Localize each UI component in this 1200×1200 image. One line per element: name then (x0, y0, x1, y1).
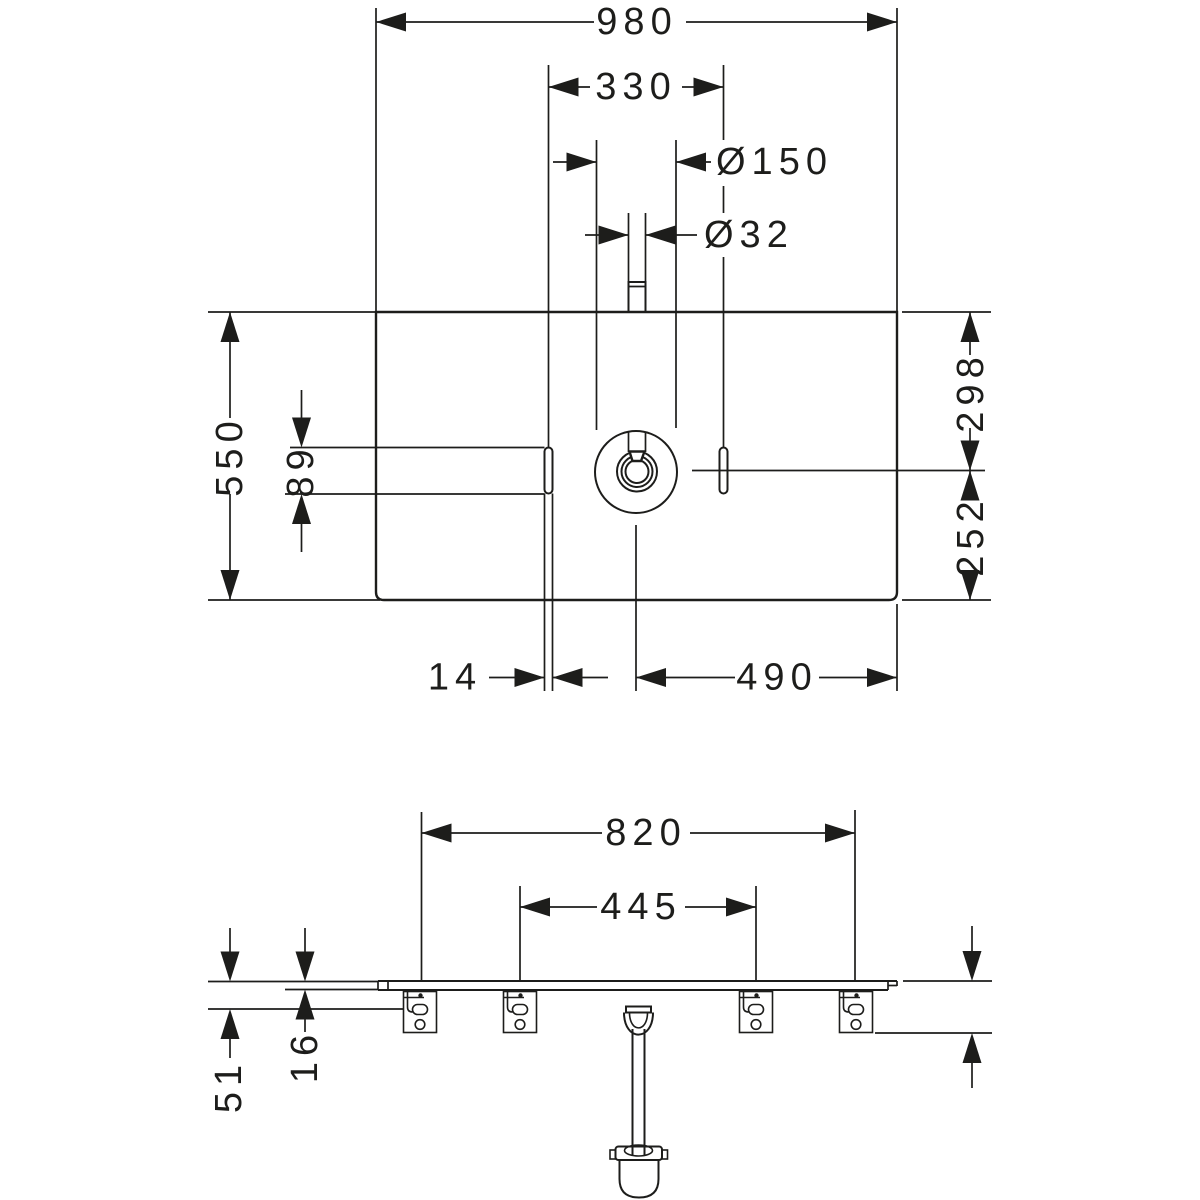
dim-label-550: 550 (209, 415, 251, 496)
bracket-screw (754, 993, 758, 997)
dim-label-51: 51 (208, 1059, 250, 1113)
bracket-screw (418, 993, 422, 997)
technical-drawing: 980 330 Ø150 (0, 0, 1200, 1200)
bracket-screw (854, 993, 858, 997)
dim-label-14: 14 (428, 657, 482, 699)
dim-label-16: 16 (284, 1029, 326, 1083)
dim-label-32: Ø32 (704, 214, 794, 256)
dim-label-330: 330 (595, 66, 676, 108)
dim-label-820: 820 (605, 812, 686, 854)
dim-label-298: 298 (950, 351, 992, 432)
drawing-canvas: 980 330 Ø150 (0, 0, 1200, 1200)
dim-label-445: 445 (600, 886, 681, 928)
dim-label-89: 89 (280, 443, 322, 497)
dim-label-150: Ø150 (716, 141, 833, 183)
dim-label-252: 252 (950, 495, 992, 576)
drain-clip (630, 452, 645, 462)
dim-label-490: 490 (736, 657, 817, 699)
dim-label-980: 980 (596, 1, 677, 43)
bracket-screw (518, 993, 522, 997)
